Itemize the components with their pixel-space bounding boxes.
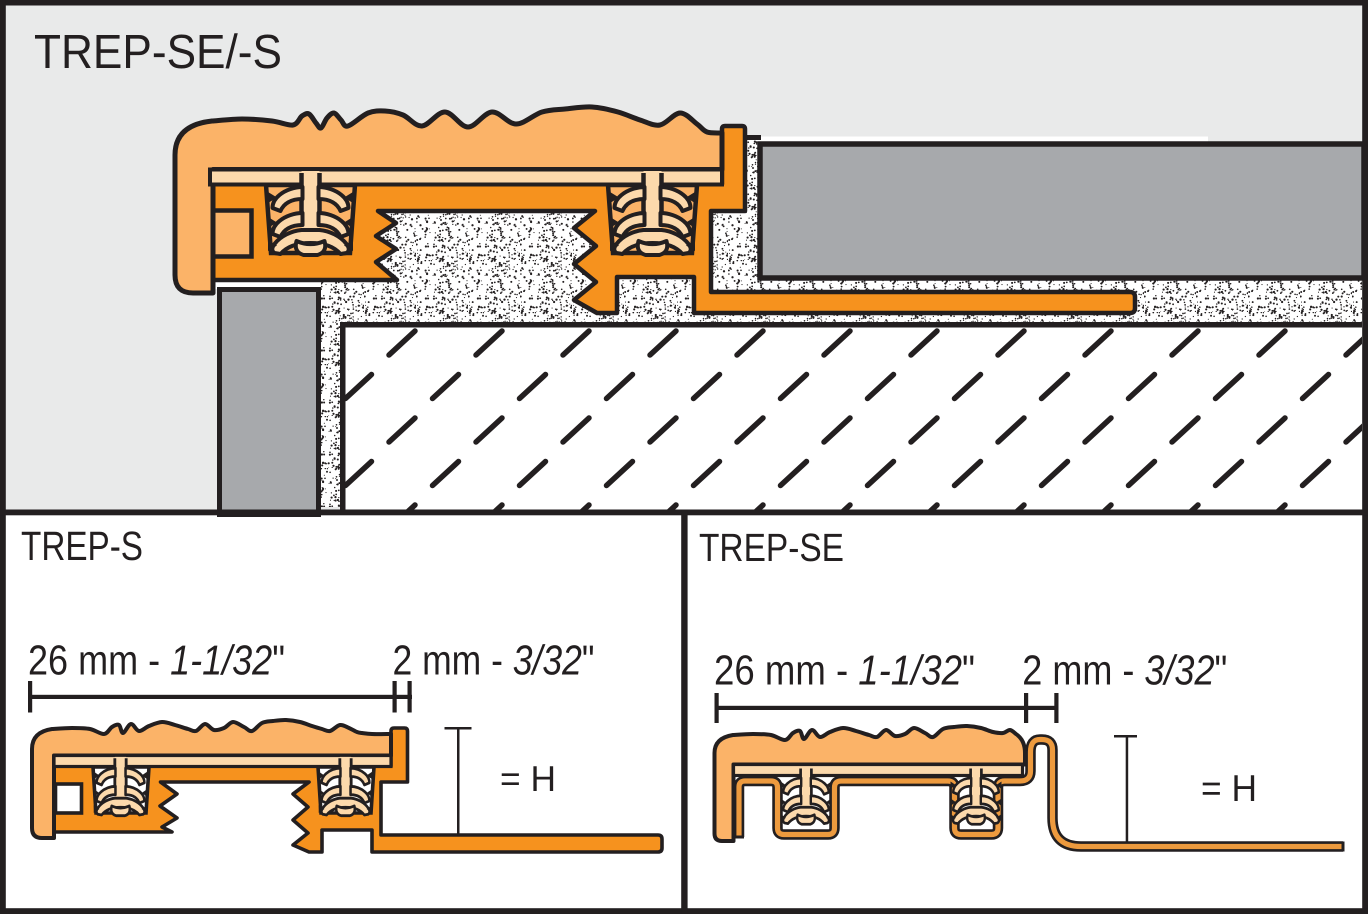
- svg-text:= H: = H: [1201, 767, 1257, 809]
- svg-text:26 mm - 1-1/32": 26 mm - 1-1/32": [28, 637, 285, 684]
- svg-text:= H: = H: [500, 758, 556, 799]
- svg-text:TREP-S: TREP-S: [21, 523, 143, 569]
- svg-text:2 mm - 3/32": 2 mm - 3/32": [1022, 647, 1227, 694]
- svg-text:TREP-SE: TREP-SE: [699, 526, 844, 570]
- svg-text:TREP-SE/-S: TREP-SE/-S: [34, 26, 282, 79]
- svg-text:2 mm - 3/32": 2 mm - 3/32": [393, 637, 595, 684]
- svg-text:26 mm - 1-1/32": 26 mm - 1-1/32": [714, 647, 975, 694]
